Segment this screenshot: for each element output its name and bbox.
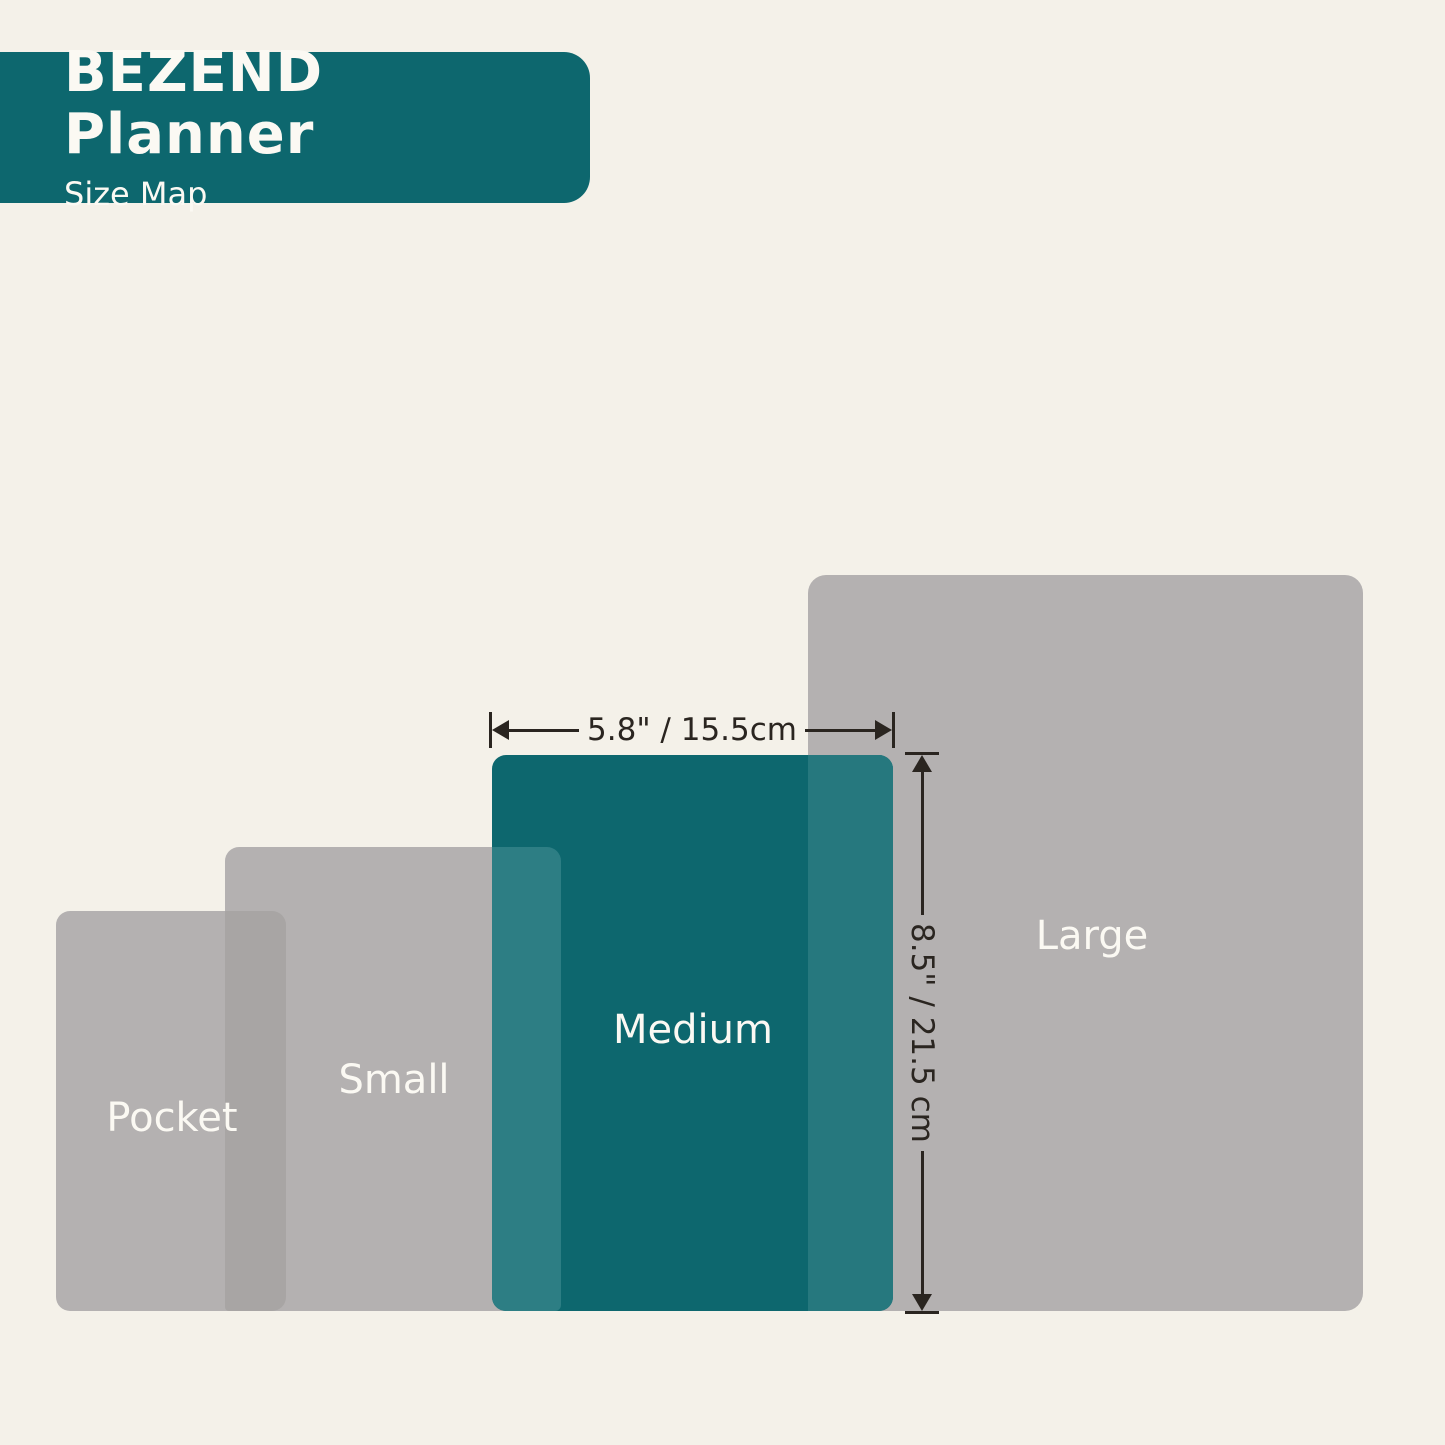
label-medium: Medium <box>613 1007 773 1053</box>
width-dimension-annotation: 5.8" / 15.5cm <box>489 711 895 749</box>
dimension-line <box>509 729 579 732</box>
label-small: Small <box>338 1057 449 1103</box>
label-pocket: Pocket <box>106 1095 237 1141</box>
label-large: Large <box>1036 913 1149 959</box>
page-subtitle: Size Map <box>64 175 590 213</box>
arrow-right-icon <box>875 720 892 740</box>
size-map-canvas: BEZEND Planner Size Map Pocket Small Med… <box>0 0 1445 1445</box>
dimension-end-tick <box>905 1311 939 1314</box>
dimension-line <box>921 772 924 915</box>
height-dimension-label: 8.5" / 21.5 cm <box>904 923 940 1143</box>
arrow-up-icon <box>912 755 932 772</box>
overlap-medium-large <box>808 755 893 1311</box>
dimension-line <box>921 1151 924 1294</box>
dimension-line <box>805 729 875 732</box>
brand-title: BEZEND Planner <box>64 42 590 165</box>
height-dimension-annotation: 8.5" / 21.5 cm <box>902 752 942 1314</box>
overlap-small-medium <box>492 847 561 1311</box>
dimension-end-tick <box>892 712 895 748</box>
arrow-down-icon <box>912 1294 932 1311</box>
header-badge: BEZEND Planner Size Map <box>0 52 590 203</box>
arrow-left-icon <box>492 720 509 740</box>
width-dimension-label: 5.8" / 15.5cm <box>587 712 797 748</box>
